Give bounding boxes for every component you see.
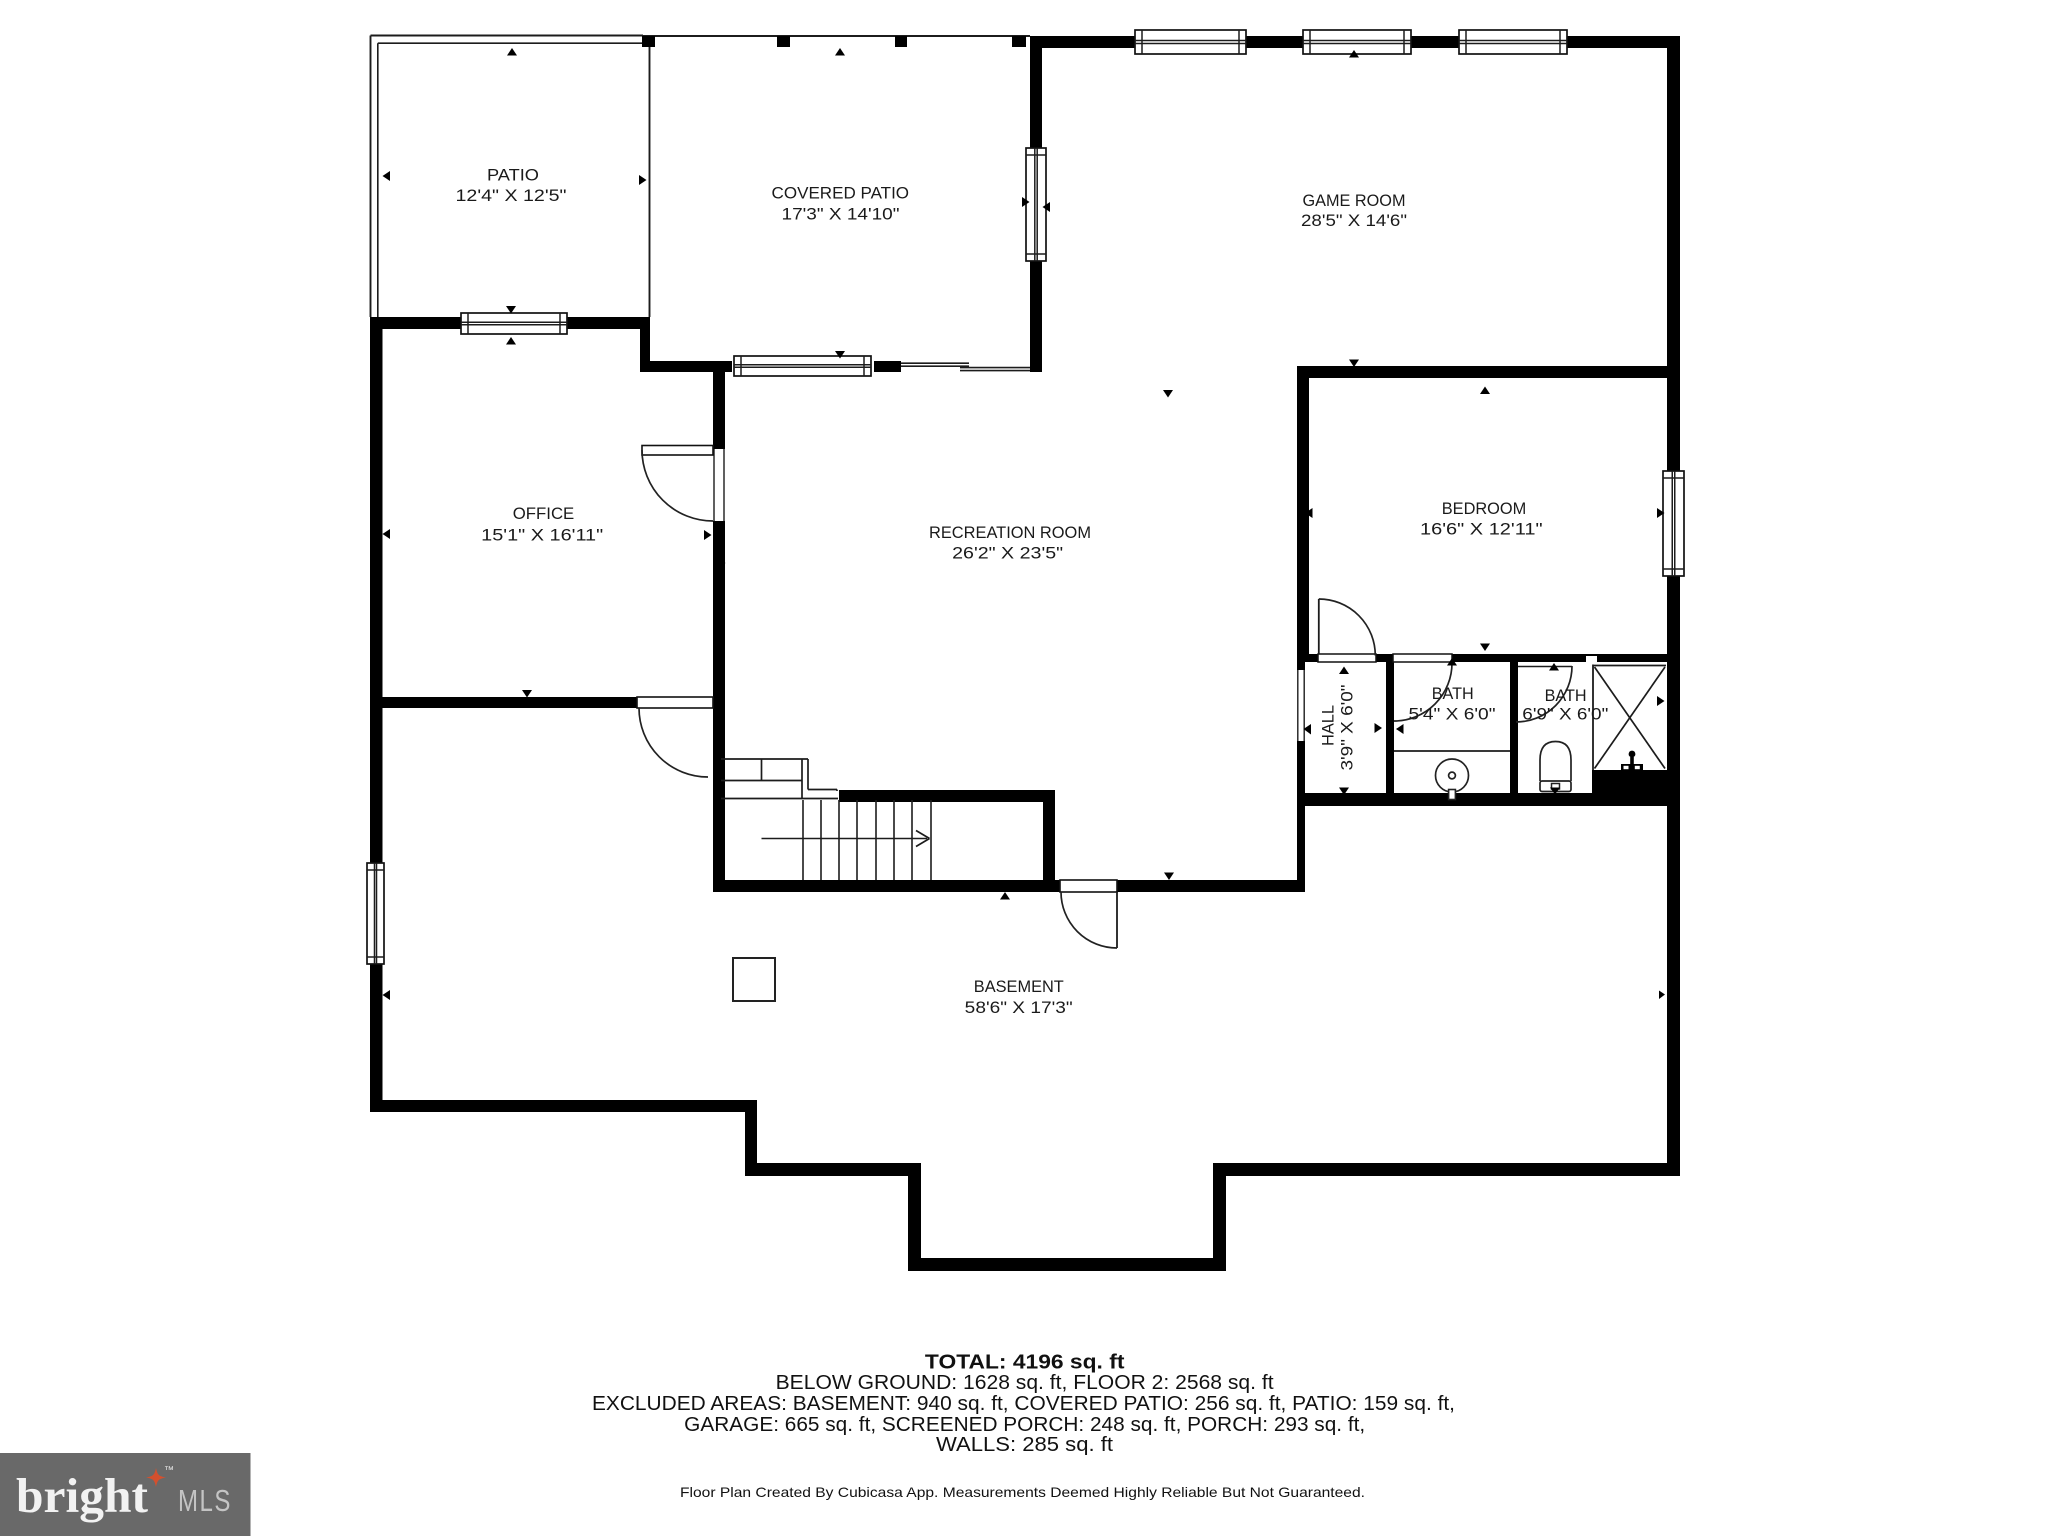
svg-text:MLS: MLS bbox=[178, 1483, 232, 1518]
svg-text:BATH: BATH bbox=[1432, 684, 1474, 703]
svg-text:58'6" X 17'3": 58'6" X 17'3" bbox=[965, 998, 1073, 1017]
svg-text:12'4" X 12'5": 12'4" X 12'5" bbox=[456, 186, 567, 205]
svg-text:16'6" X 12'11": 16'6" X 12'11" bbox=[1420, 520, 1543, 539]
svg-text:WALLS: 285 sq. ft: WALLS: 285 sq. ft bbox=[936, 1434, 1113, 1456]
svg-text:COVERED PATIO: COVERED PATIO bbox=[772, 183, 910, 202]
svg-text:3'9" X 6'0": 3'9" X 6'0" bbox=[1338, 685, 1357, 771]
svg-text:15'1" X 16'11": 15'1" X 16'11" bbox=[481, 526, 603, 545]
svg-text:OFFICE: OFFICE bbox=[513, 504, 575, 523]
svg-text:BATH: BATH bbox=[1545, 686, 1587, 705]
svg-text:6'9" X 6'0": 6'9" X 6'0" bbox=[1522, 705, 1608, 724]
svg-text:28'5" X 14'6": 28'5" X 14'6" bbox=[1301, 211, 1407, 230]
svg-text:5'4" X 6'0": 5'4" X 6'0" bbox=[1409, 705, 1496, 724]
svg-text:GARAGE: 665 sq. ft, SCREENED P: GARAGE: 665 sq. ft, SCREENED PORCH: 248 … bbox=[684, 1414, 1365, 1436]
svg-text:PATIO: PATIO bbox=[487, 166, 539, 185]
svg-text:HALL: HALL bbox=[1319, 705, 1338, 746]
svg-text:EXCLUDED AREAS: BASEMENT: 940: EXCLUDED AREAS: BASEMENT: 940 sq. ft, CO… bbox=[592, 1393, 1455, 1415]
svg-text:BELOW GROUND: 1628 sq. ft, FLO: BELOW GROUND: 1628 sq. ft, FLOOR 2: 2568… bbox=[776, 1372, 1274, 1394]
svg-text:26'2" X 23'5": 26'2" X 23'5" bbox=[952, 544, 1063, 563]
svg-text:BEDROOM: BEDROOM bbox=[1442, 499, 1527, 518]
svg-text:TOTAL: 4196 sq. ft: TOTAL: 4196 sq. ft bbox=[925, 1352, 1125, 1374]
svg-text:Floor Plan Created By Cubicasa: Floor Plan Created By Cubicasa App. Meas… bbox=[680, 1484, 1365, 1500]
svg-text:17'3" X 14'10": 17'3" X 14'10" bbox=[782, 204, 900, 223]
svg-text:BASEMENT: BASEMENT bbox=[974, 977, 1064, 996]
svg-text:bright: bright bbox=[16, 1468, 149, 1523]
svg-text:RECREATION ROOM: RECREATION ROOM bbox=[929, 523, 1091, 542]
svg-text:™: ™ bbox=[164, 1465, 174, 1476]
svg-text:GAME ROOM: GAME ROOM bbox=[1303, 191, 1406, 210]
